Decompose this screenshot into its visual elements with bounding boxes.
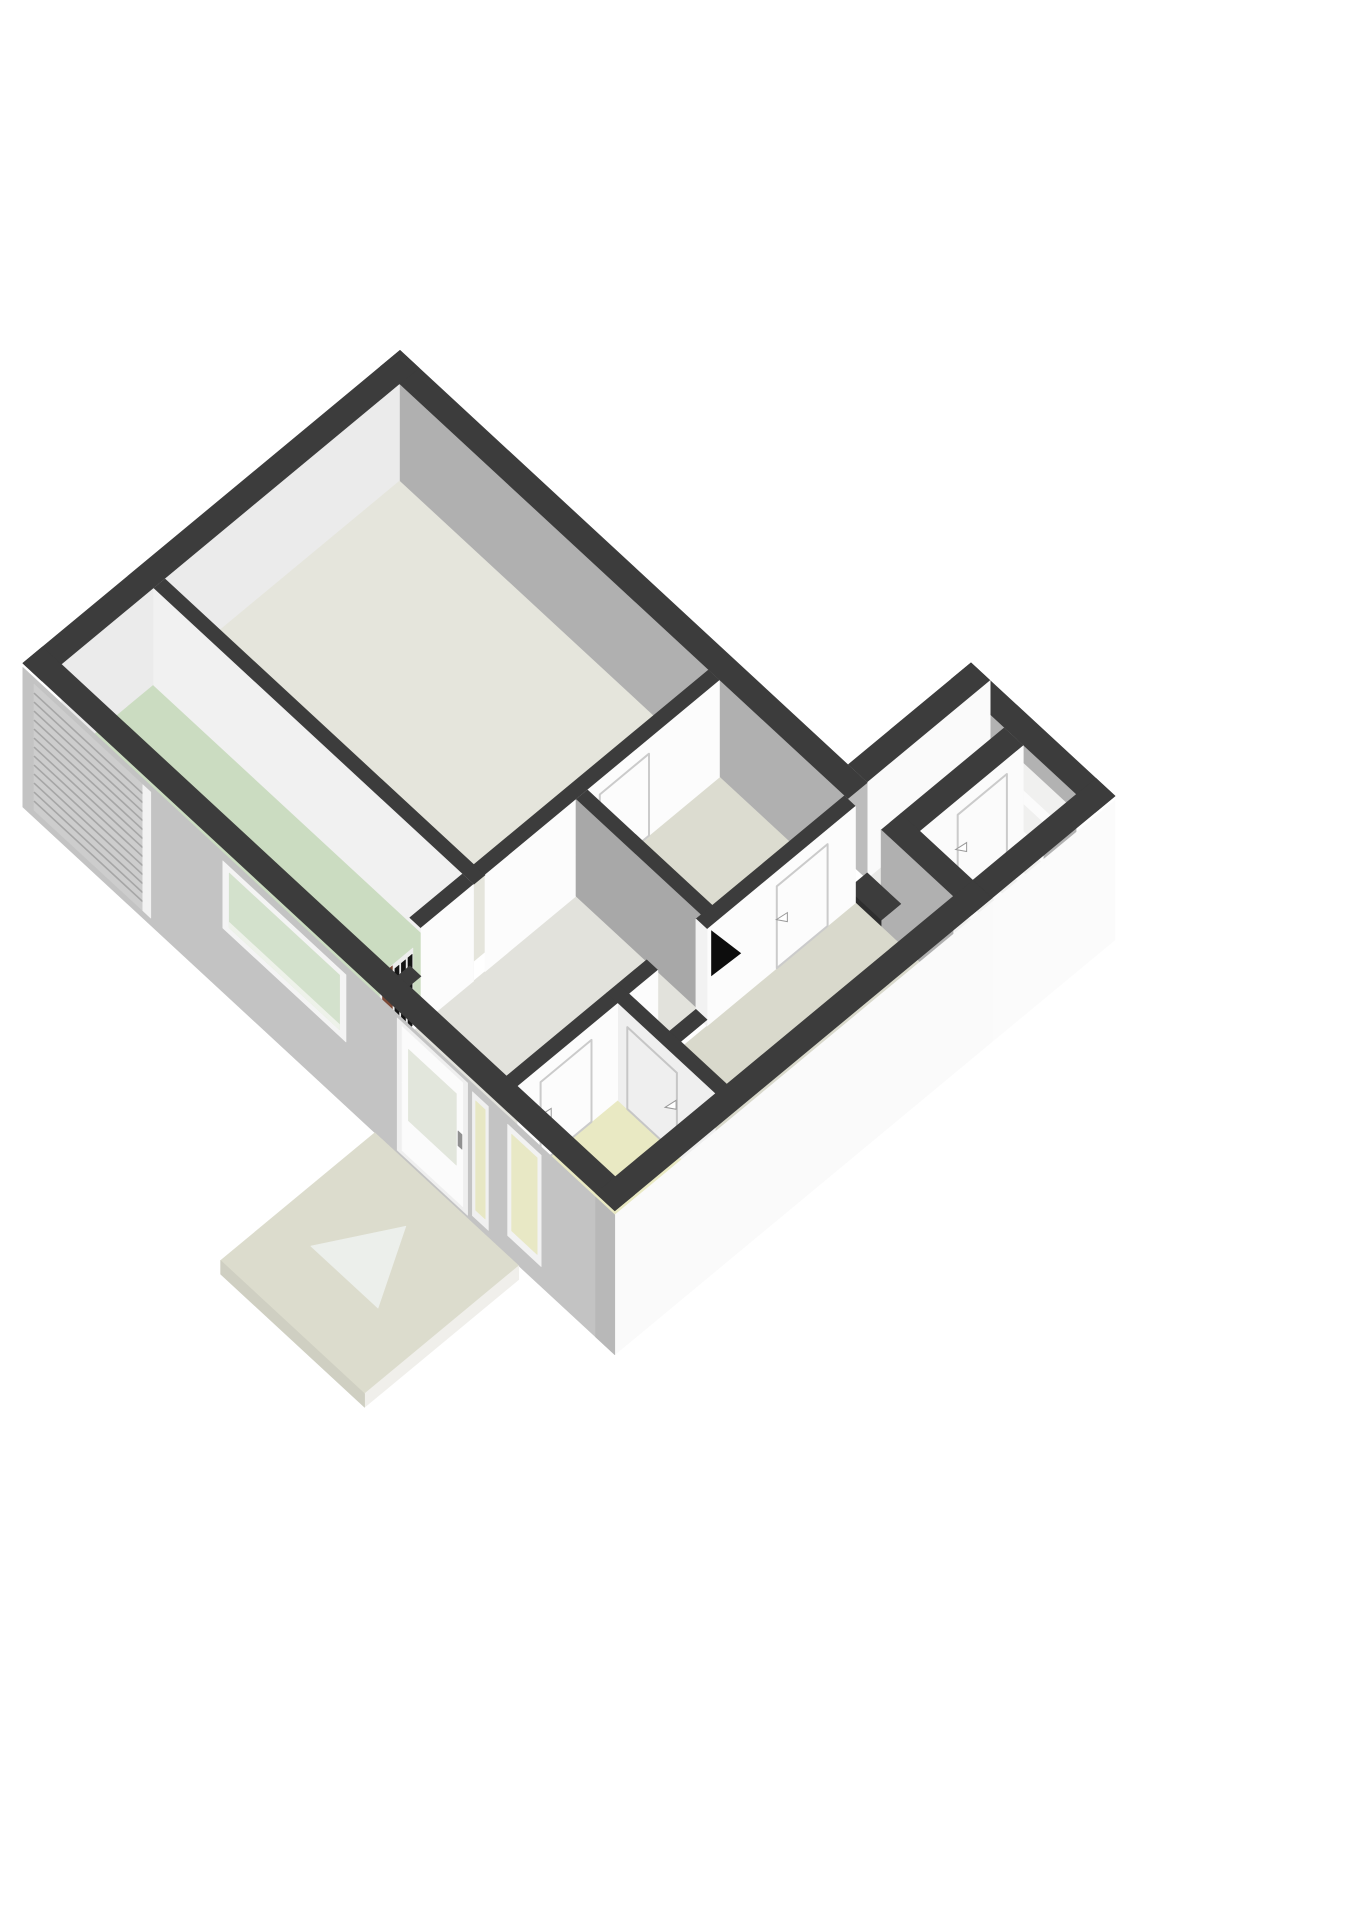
doorway-jamb-cap (696, 919, 707, 1026)
floorplan-svg (0, 0, 1358, 1920)
roller-shutter-frame (143, 785, 151, 918)
front-door-sidelight-glass (476, 1101, 486, 1219)
floorplan-3d-view (0, 0, 1358, 1920)
front-door-handle (458, 1131, 462, 1149)
se-wall-south-endcap (596, 1197, 615, 1355)
